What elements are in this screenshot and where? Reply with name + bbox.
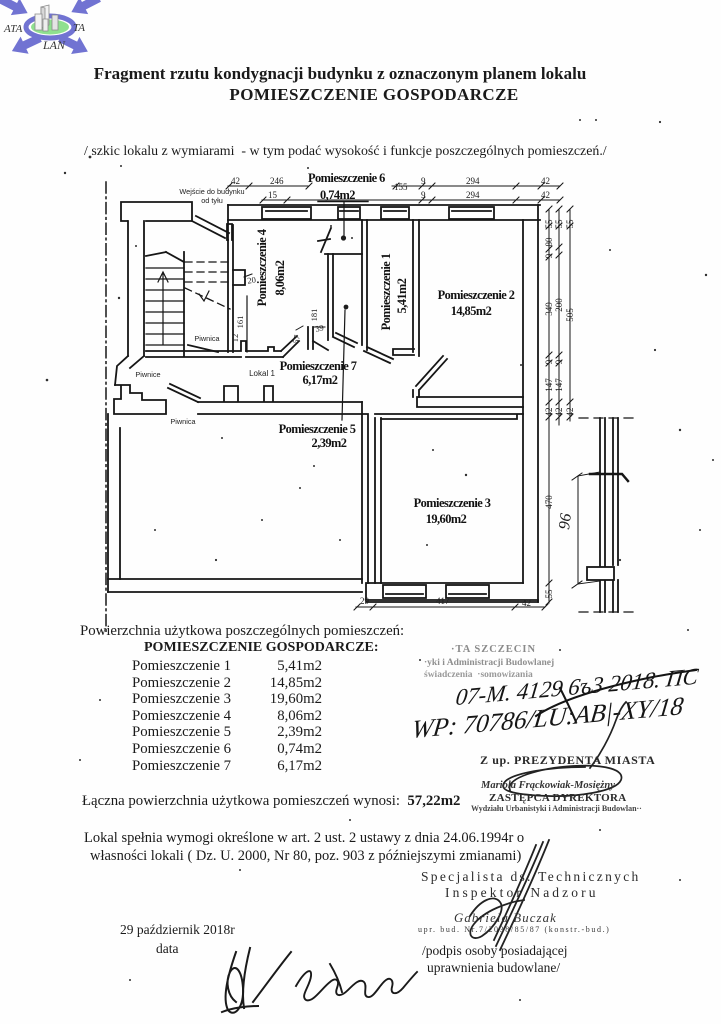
svg-text:Piwnice: Piwnice	[135, 370, 160, 379]
svg-text:417: 417	[436, 596, 450, 606]
svg-text:42: 42	[544, 408, 554, 417]
svg-text:147: 147	[554, 378, 564, 392]
svg-text:2,39m2: 2,39m2	[312, 436, 347, 450]
svg-text:Piwnica: Piwnica	[194, 334, 220, 343]
svg-text:42: 42	[541, 190, 550, 200]
svg-text:42: 42	[565, 408, 575, 417]
svg-text:Piwnica: Piwnica	[170, 417, 196, 426]
svg-text:9: 9	[544, 253, 554, 258]
svg-text:TA: TA	[73, 22, 85, 34]
svg-text:181: 181	[309, 309, 319, 322]
svg-text:55: 55	[554, 219, 564, 229]
svg-text:57: 57	[290, 334, 302, 345]
svg-text:80: 80	[544, 237, 554, 247]
svg-text:Pomieszczenie 4: Pomieszczenie 4	[255, 229, 269, 306]
svg-text:0,74m2: 0,74m2	[320, 188, 355, 202]
svg-text:246: 246	[270, 176, 284, 186]
svg-text:Lokal 1: Lokal 1	[249, 369, 275, 378]
svg-text:294: 294	[466, 190, 480, 200]
svg-text:9: 9	[421, 176, 426, 186]
svg-text:Pomieszczenie 5: Pomieszczenie 5	[279, 422, 356, 436]
svg-text:Pomieszczenie 7: Pomieszczenie 7	[280, 359, 357, 373]
svg-text:15: 15	[268, 190, 278, 200]
svg-text:470: 470	[544, 495, 554, 509]
svg-text:9: 9	[421, 190, 426, 200]
svg-text:20: 20	[247, 274, 257, 285]
svg-text:55: 55	[544, 219, 554, 229]
svg-text:55: 55	[565, 219, 575, 229]
svg-text:294: 294	[466, 176, 480, 186]
svg-text:9: 9	[544, 359, 554, 364]
svg-text:9: 9	[554, 359, 564, 364]
svg-text:42: 42	[231, 176, 240, 186]
svg-text:Pomieszczenie 1: Pomieszczenie 1	[379, 253, 393, 330]
svg-text:LAN: LAN	[42, 38, 66, 52]
svg-text:96: 96	[556, 513, 575, 531]
svg-text:155: 155	[394, 182, 408, 192]
svg-text:349: 349	[544, 302, 554, 316]
svg-text:Pomieszczenie 6: Pomieszczenie 6	[308, 171, 385, 185]
svg-text:8,06m2: 8,06m2	[273, 260, 287, 295]
svg-text:14,85m2: 14,85m2	[451, 304, 492, 318]
svg-text:Pomieszczenie 2: Pomieszczenie 2	[438, 288, 515, 302]
svg-text:5,41m2: 5,41m2	[395, 278, 409, 313]
svg-text:42: 42	[554, 408, 564, 417]
svg-text:19,60m2: 19,60m2	[426, 512, 467, 526]
svg-text:200: 200	[554, 298, 564, 312]
svg-text:29: 29	[360, 596, 370, 606]
svg-text:55: 55	[544, 589, 554, 599]
svg-text:161: 161	[235, 316, 245, 329]
svg-text:39: 39	[314, 322, 324, 334]
svg-text:42: 42	[541, 176, 550, 186]
svg-text:505: 505	[565, 308, 575, 322]
svg-text:12: 12	[230, 334, 240, 343]
svg-text:147: 147	[544, 378, 554, 392]
svg-text:42: 42	[522, 598, 531, 608]
svg-text:Pomieszczenie 3: Pomieszczenie 3	[414, 496, 491, 510]
svg-text:6,17m2: 6,17m2	[303, 373, 338, 387]
svg-text:ATA: ATA	[3, 23, 23, 35]
svg-text:Wejście do budynku: Wejście do budynku	[179, 187, 244, 196]
svg-text:od tyłu: od tyłu	[201, 196, 223, 205]
